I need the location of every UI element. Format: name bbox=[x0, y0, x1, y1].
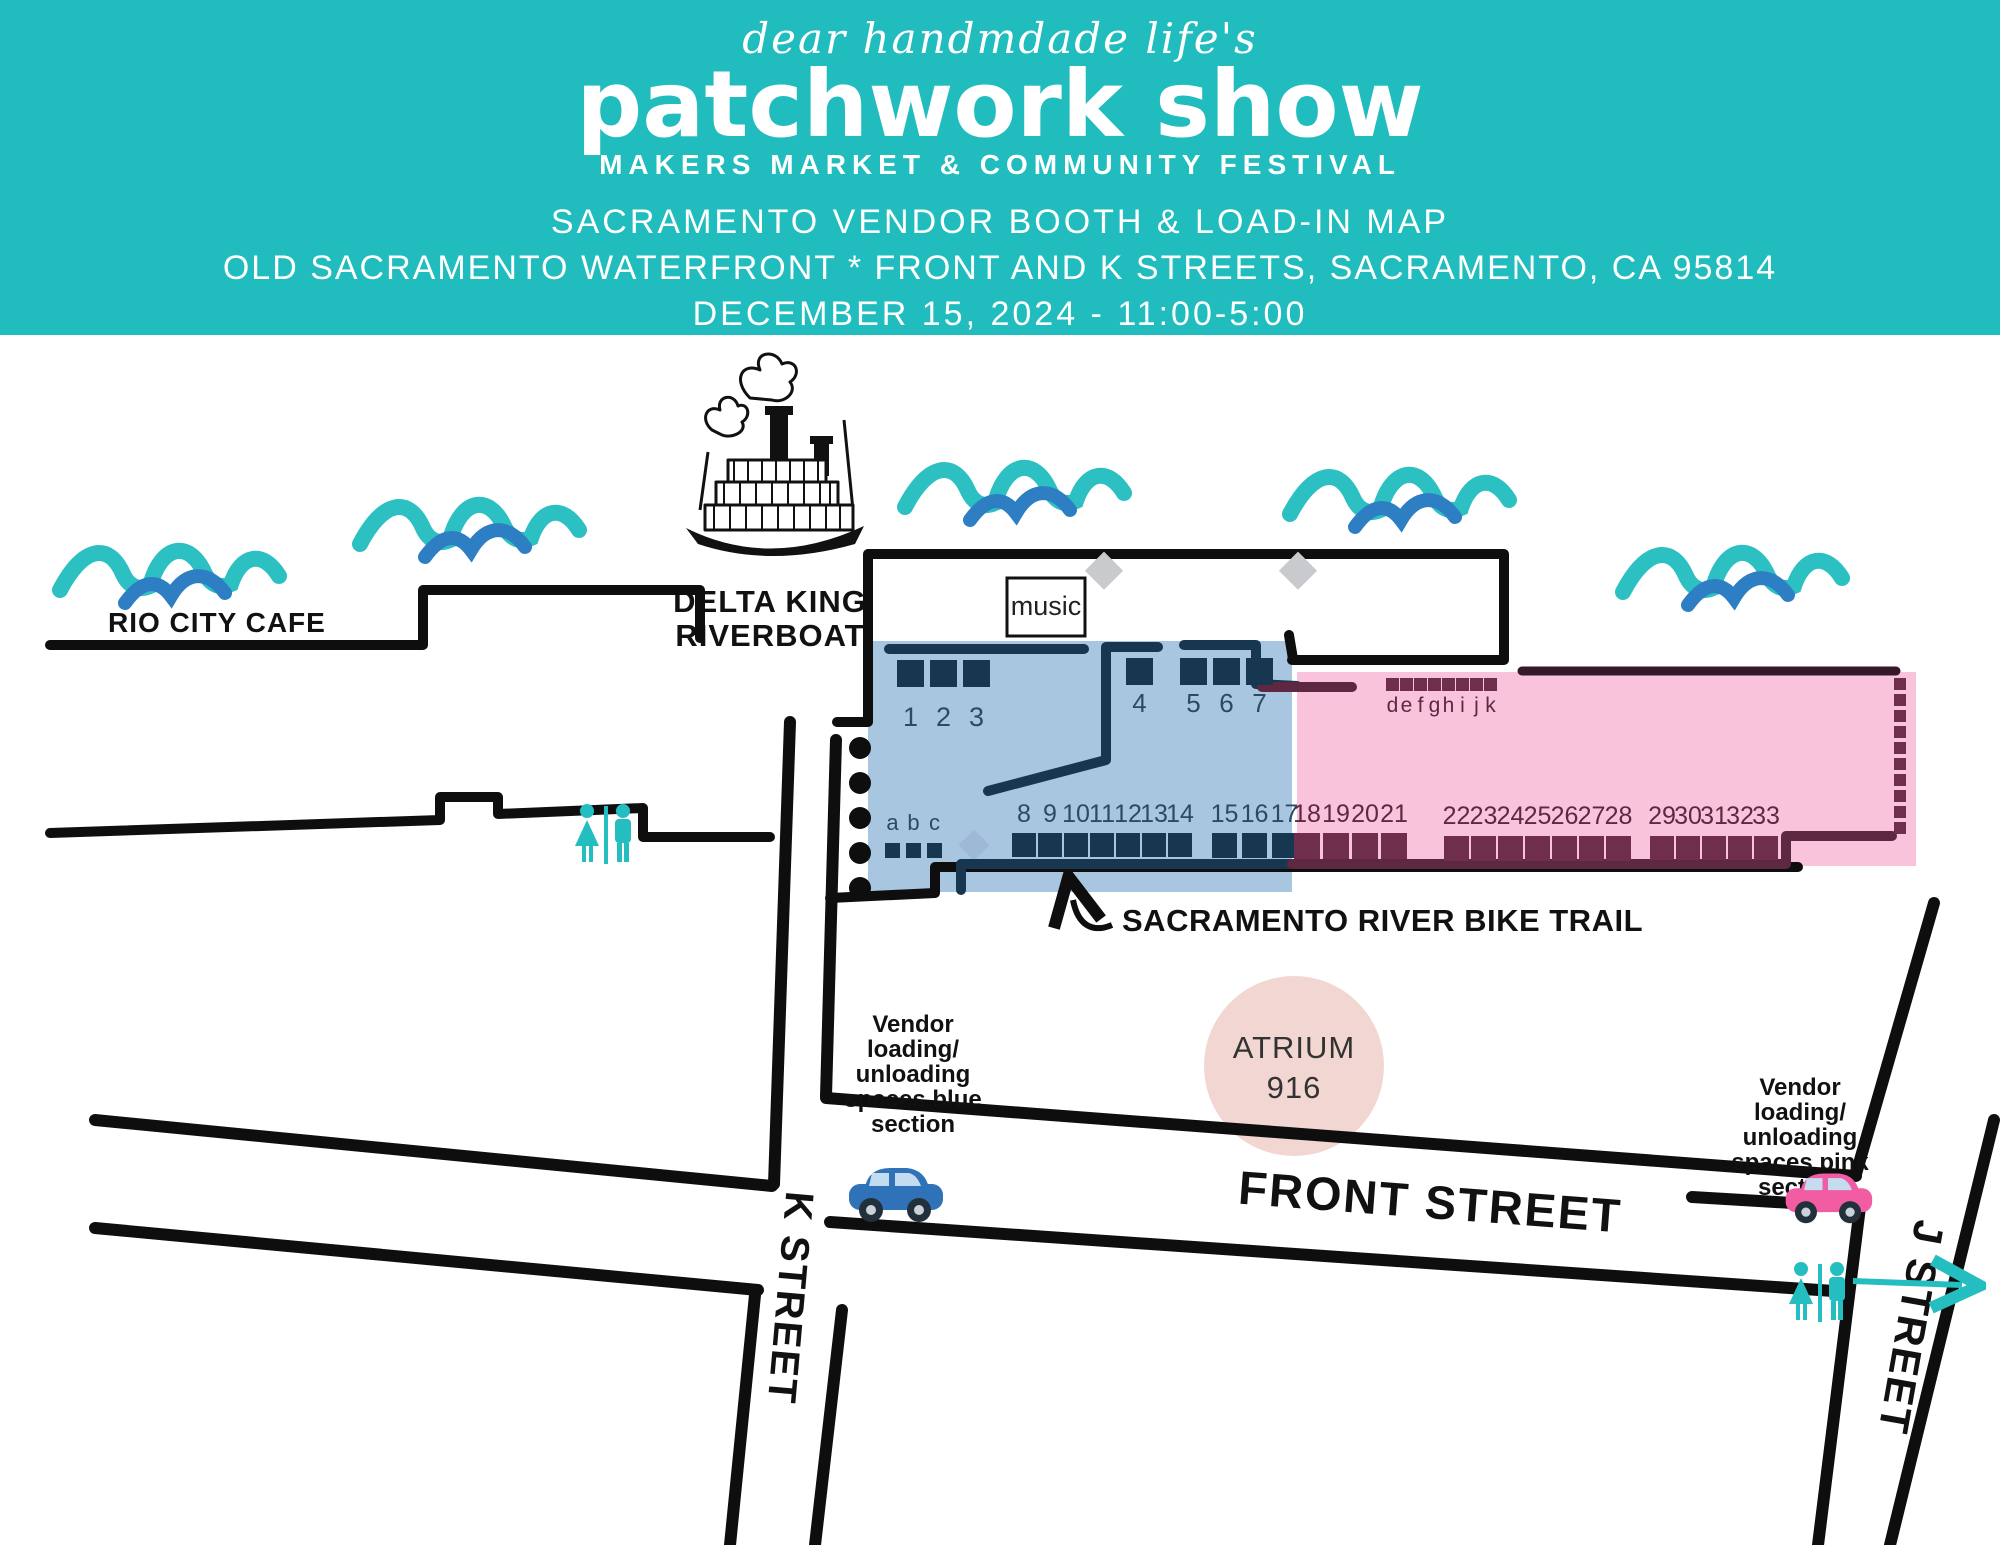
lower-building-outline bbox=[50, 797, 770, 837]
booth-label: 25 bbox=[1524, 802, 1552, 830]
booth-label: 24 bbox=[1497, 802, 1525, 830]
pink-edge-dot bbox=[1894, 710, 1906, 722]
j-street-west-edge-upper bbox=[1856, 903, 1934, 1174]
booth-label: 1 bbox=[903, 702, 918, 732]
k-street-west-edge-upper bbox=[774, 722, 790, 1184]
front-street-north-edge-west bbox=[95, 1120, 772, 1186]
booth-label: 6 bbox=[1219, 688, 1233, 718]
booth-square bbox=[1428, 678, 1441, 691]
booth-square bbox=[1213, 658, 1240, 685]
booth-label: 14 bbox=[1166, 800, 1194, 828]
booth-label: 9 bbox=[1043, 800, 1057, 828]
booth-square bbox=[1400, 678, 1413, 691]
k-street-west-edge-lower bbox=[730, 1295, 755, 1545]
wave-icon bbox=[1290, 475, 1509, 527]
booth-square bbox=[1323, 833, 1349, 859]
booth-label: 8 bbox=[1017, 800, 1031, 828]
header-banner: dear handmdade life's patchwork show MAK… bbox=[0, 0, 2000, 335]
poster-subtitle: OLD SACRAMENTO WATERFRONT * FRONT AND K … bbox=[0, 249, 2000, 288]
booth-square bbox=[1168, 833, 1192, 857]
booth-label: 29 bbox=[1648, 802, 1676, 830]
booth-label: 21 bbox=[1380, 800, 1408, 828]
booth-label: h bbox=[1443, 694, 1455, 717]
booth-label: k bbox=[1485, 694, 1496, 717]
booth-label: d bbox=[1387, 694, 1399, 717]
booth-square bbox=[1606, 836, 1631, 861]
booth-label: 16 bbox=[1241, 800, 1269, 828]
booth-label: g bbox=[1429, 694, 1441, 717]
pink-edge-dot bbox=[1894, 678, 1906, 690]
booth-square bbox=[1116, 833, 1140, 857]
booth-square bbox=[906, 843, 921, 858]
svg-text:unloading: unloading bbox=[1743, 1124, 1858, 1151]
wave-icon bbox=[60, 551, 279, 603]
booth-label: 5 bbox=[1186, 688, 1200, 718]
booth-square bbox=[1702, 836, 1726, 860]
j-street-west-edge-lower bbox=[1692, 1197, 1860, 1545]
pink-edge-dot bbox=[1894, 742, 1906, 754]
booth-square bbox=[1142, 833, 1166, 857]
booth-square bbox=[1498, 836, 1523, 861]
vendor-map-poster: dear handmdade life's patchwork show MAK… bbox=[0, 0, 2000, 1545]
bike-trail-label: SACRAMENTO RIVER BIKE TRAIL bbox=[1122, 903, 1643, 938]
svg-text:unloading: unloading bbox=[856, 1061, 971, 1088]
poster-datetime: DECEMBER 15, 2024 - 11:00-5:00 bbox=[0, 295, 2000, 334]
booth-square bbox=[1038, 833, 1062, 857]
booth-square bbox=[1456, 678, 1469, 691]
booth-label: j bbox=[1473, 694, 1479, 717]
booth-square bbox=[1414, 678, 1427, 691]
booth-square bbox=[1470, 678, 1483, 691]
booth-square bbox=[1444, 836, 1469, 861]
booth-square bbox=[1754, 836, 1778, 860]
booth-label: 13 bbox=[1140, 800, 1168, 828]
pink-edge-dot bbox=[1894, 694, 1906, 706]
booth-square bbox=[897, 660, 924, 687]
booth-label: 26 bbox=[1551, 802, 1579, 830]
booth-label: 33 bbox=[1752, 802, 1780, 830]
k-street-east-edge-upper bbox=[826, 740, 836, 1096]
j-street-direction-arrow bbox=[1853, 1281, 1962, 1285]
pink-edge-dot bbox=[1894, 822, 1906, 834]
booth-square bbox=[1525, 836, 1550, 861]
pink-edge-dot bbox=[1894, 726, 1906, 738]
booth-label: 22 bbox=[1443, 802, 1471, 830]
booth-label: 12 bbox=[1114, 800, 1142, 828]
booth-square bbox=[1386, 678, 1399, 691]
booth-label: 30 bbox=[1674, 802, 1702, 830]
booth-label: 19 bbox=[1322, 800, 1350, 828]
pink-edge-dot bbox=[1894, 774, 1906, 786]
brand-name: patchwork show bbox=[0, 63, 2000, 147]
booth-label: 28 bbox=[1605, 802, 1633, 830]
booth-square bbox=[1471, 836, 1496, 861]
booth-square bbox=[1294, 833, 1320, 859]
atrium-label-line2: 916 bbox=[1267, 1070, 1322, 1105]
booth-label: f bbox=[1418, 694, 1424, 717]
booth-label: a bbox=[886, 810, 899, 835]
booth-label: c bbox=[929, 810, 940, 835]
booth-square bbox=[930, 660, 957, 687]
booth-square bbox=[1012, 833, 1036, 857]
booth-label: 18 bbox=[1293, 800, 1321, 828]
booth-square bbox=[1728, 836, 1752, 860]
booth-label: i bbox=[1460, 694, 1465, 717]
booth-square bbox=[1552, 836, 1577, 861]
svg-text:loading/: loading/ bbox=[867, 1036, 959, 1063]
booth-label: 32 bbox=[1726, 802, 1754, 830]
booth-label: 7 bbox=[1252, 688, 1266, 718]
booth-label: e bbox=[1401, 694, 1413, 717]
booth-label: 31 bbox=[1700, 802, 1728, 830]
booth-label: 3 bbox=[969, 702, 984, 732]
booth-square bbox=[963, 660, 990, 687]
music-label: music bbox=[1011, 591, 1082, 621]
blue-car-icon bbox=[849, 1168, 943, 1222]
booth-square bbox=[1126, 658, 1153, 685]
booth-square bbox=[927, 843, 942, 858]
booth-label: 20 bbox=[1351, 800, 1379, 828]
pink-edge-dot bbox=[1894, 758, 1906, 770]
wave-icon bbox=[905, 468, 1124, 520]
booth-square bbox=[1442, 678, 1455, 691]
booth-label: 15 bbox=[1211, 800, 1239, 828]
booth-square bbox=[885, 843, 900, 858]
svg-text:Vendor: Vendor bbox=[872, 1011, 953, 1038]
k-street-label: K STREET bbox=[759, 1190, 821, 1407]
front-street-south-edge-east bbox=[830, 1222, 1848, 1292]
booth-square bbox=[1212, 833, 1237, 858]
booth-square bbox=[1180, 658, 1207, 685]
booth-square bbox=[1064, 833, 1088, 857]
booth-square bbox=[1090, 833, 1114, 857]
pink-edge-dot bbox=[1894, 790, 1906, 802]
pier-post-dots bbox=[849, 737, 871, 899]
booth-square bbox=[1676, 836, 1700, 860]
svg-text:Vendor: Vendor bbox=[1759, 1074, 1840, 1101]
delta-king-riverboat-illustration bbox=[686, 354, 864, 556]
booth-square bbox=[1484, 678, 1497, 691]
loading-note-blue: Vendor loading/ unloading spaces blue se… bbox=[844, 1011, 981, 1138]
booth-square bbox=[1352, 833, 1378, 859]
booth-square bbox=[1650, 836, 1674, 860]
booth-label: 23 bbox=[1470, 802, 1498, 830]
svg-text:spaces blue: spaces blue bbox=[844, 1086, 981, 1113]
building-wall-tick bbox=[1289, 635, 1293, 659]
booth-square bbox=[1381, 833, 1407, 859]
pink-edge-dot bbox=[1894, 806, 1906, 818]
booth-label: 27 bbox=[1578, 802, 1606, 830]
booth-square bbox=[1272, 833, 1297, 858]
bike-trail-arrow bbox=[1073, 900, 1112, 928]
booth-square bbox=[1242, 833, 1267, 858]
booth-label: 11 bbox=[1089, 800, 1115, 828]
brand-tagline: MAKERS MARKET & COMMUNITY FESTIVAL bbox=[0, 149, 2000, 181]
svg-text:loading/: loading/ bbox=[1754, 1099, 1846, 1126]
booth-label: 4 bbox=[1132, 688, 1146, 718]
wave-icon bbox=[360, 505, 579, 557]
atrium-label-line1: ATRIUM bbox=[1233, 1030, 1356, 1065]
wave-icon bbox=[1623, 553, 1842, 605]
booth-square bbox=[1246, 658, 1273, 685]
booth-label: 2 bbox=[936, 702, 951, 732]
booth-square bbox=[1579, 836, 1604, 861]
front-street-south-edge-west bbox=[95, 1228, 758, 1290]
rio-city-cafe-label: RIO CITY CAFE bbox=[108, 607, 326, 638]
svg-text:spaces pink: spaces pink bbox=[1731, 1149, 1869, 1176]
poster-title: SACRAMENTO VENDOR BOOTH & LOAD-IN MAP bbox=[0, 203, 2000, 242]
k-street-east-edge-lower bbox=[815, 1310, 842, 1545]
front-street-label: FRONT STREET bbox=[1237, 1161, 1624, 1243]
svg-text:section: section bbox=[871, 1111, 955, 1138]
booth-label: 10 bbox=[1062, 800, 1090, 828]
booth-label: b bbox=[907, 810, 919, 835]
